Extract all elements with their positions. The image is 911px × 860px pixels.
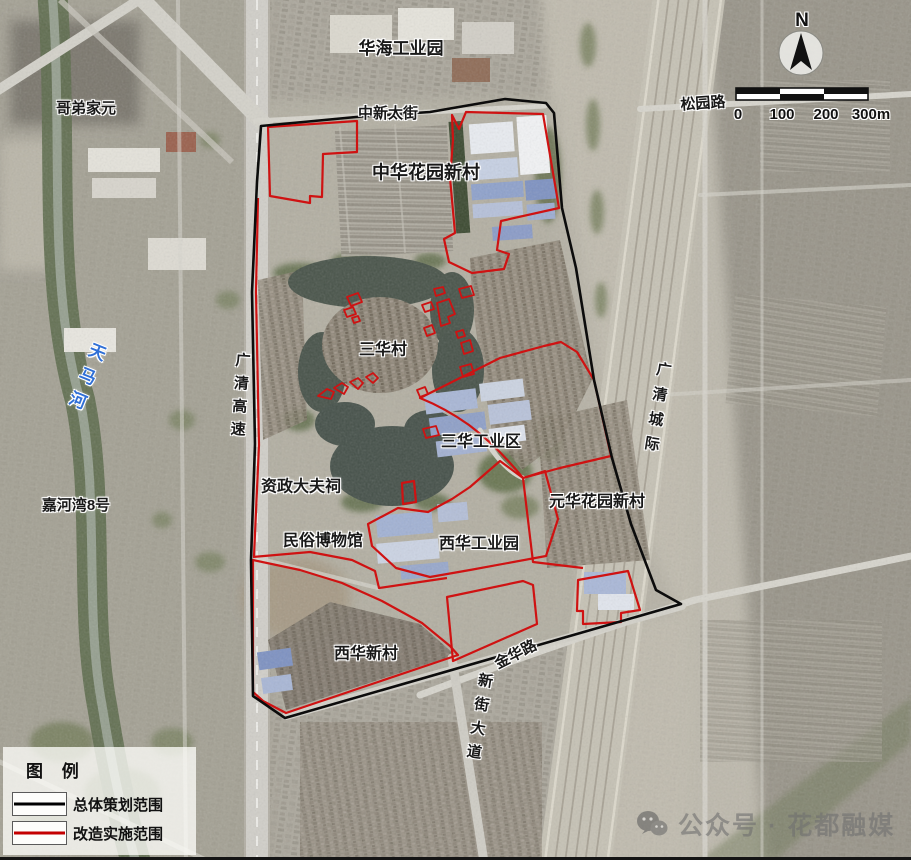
label-folk-museum: 民俗博物馆 [283,534,363,551]
label-gedi-jiayuan: 哥弟家元 [56,101,116,117]
legend-title: 图 例 [26,757,196,782]
scale-tick-200: 200 [813,106,838,123]
legend-item-label: 总体策划范围 [73,794,163,815]
legend-panel: 图 例 总体策划范围 改造实施范围 [3,747,196,855]
label-sanhua-village: 三华村 [359,343,407,360]
scale-bar-graphic [731,86,876,104]
scale-tick-0: 0 [734,106,742,123]
label-huahai-industrial-park: 华海工业园 [359,40,444,58]
north-label: N [795,10,809,32]
overall-plan-swatch [12,792,67,816]
scale-bar: 0 100 200 300m [731,86,891,122]
label-songyuan-road: 松园路 [680,95,726,114]
satellite-imagery [0,0,911,860]
wechat-icon [636,809,668,839]
label-jiahewan-8: 嘉河湾8号 [42,498,110,514]
planning-map: 华海工业园 哥弟家元 中新太街 松园路 中华花园新村 天马河 三华村 广清高速 … [0,0,911,860]
legend-item-implementation: 改造实施范围 [12,821,196,845]
label-xihua-new-village: 西华新村 [334,647,398,664]
legend-item-label: 改造实施范围 [73,823,163,844]
label-yuanhua-garden-village: 元华花园新村 [549,495,645,512]
implementation-swatch [12,821,67,845]
label-zhonghua-garden-village: 中华花园新村 [372,164,480,183]
satellite-texture [0,0,911,860]
legend-item-overall-plan: 总体策划范围 [12,792,196,816]
watermark-text: 公众号 · 花都融媒 [678,806,895,842]
label-xihua-industrial-park: 西华工业园 [439,537,519,554]
scale-tick-100: 100 [769,106,794,123]
label-zhongxin-street: 中新太街 [358,106,418,122]
watermark: 公众号 · 花都融媒 [636,806,895,842]
label-zizheng-dafu-temple: 资政大夫祠 [261,480,341,497]
label-sanhua-industrial-zone: 三华工业区 [441,435,521,452]
scale-tick-300m: 300m [852,106,890,123]
